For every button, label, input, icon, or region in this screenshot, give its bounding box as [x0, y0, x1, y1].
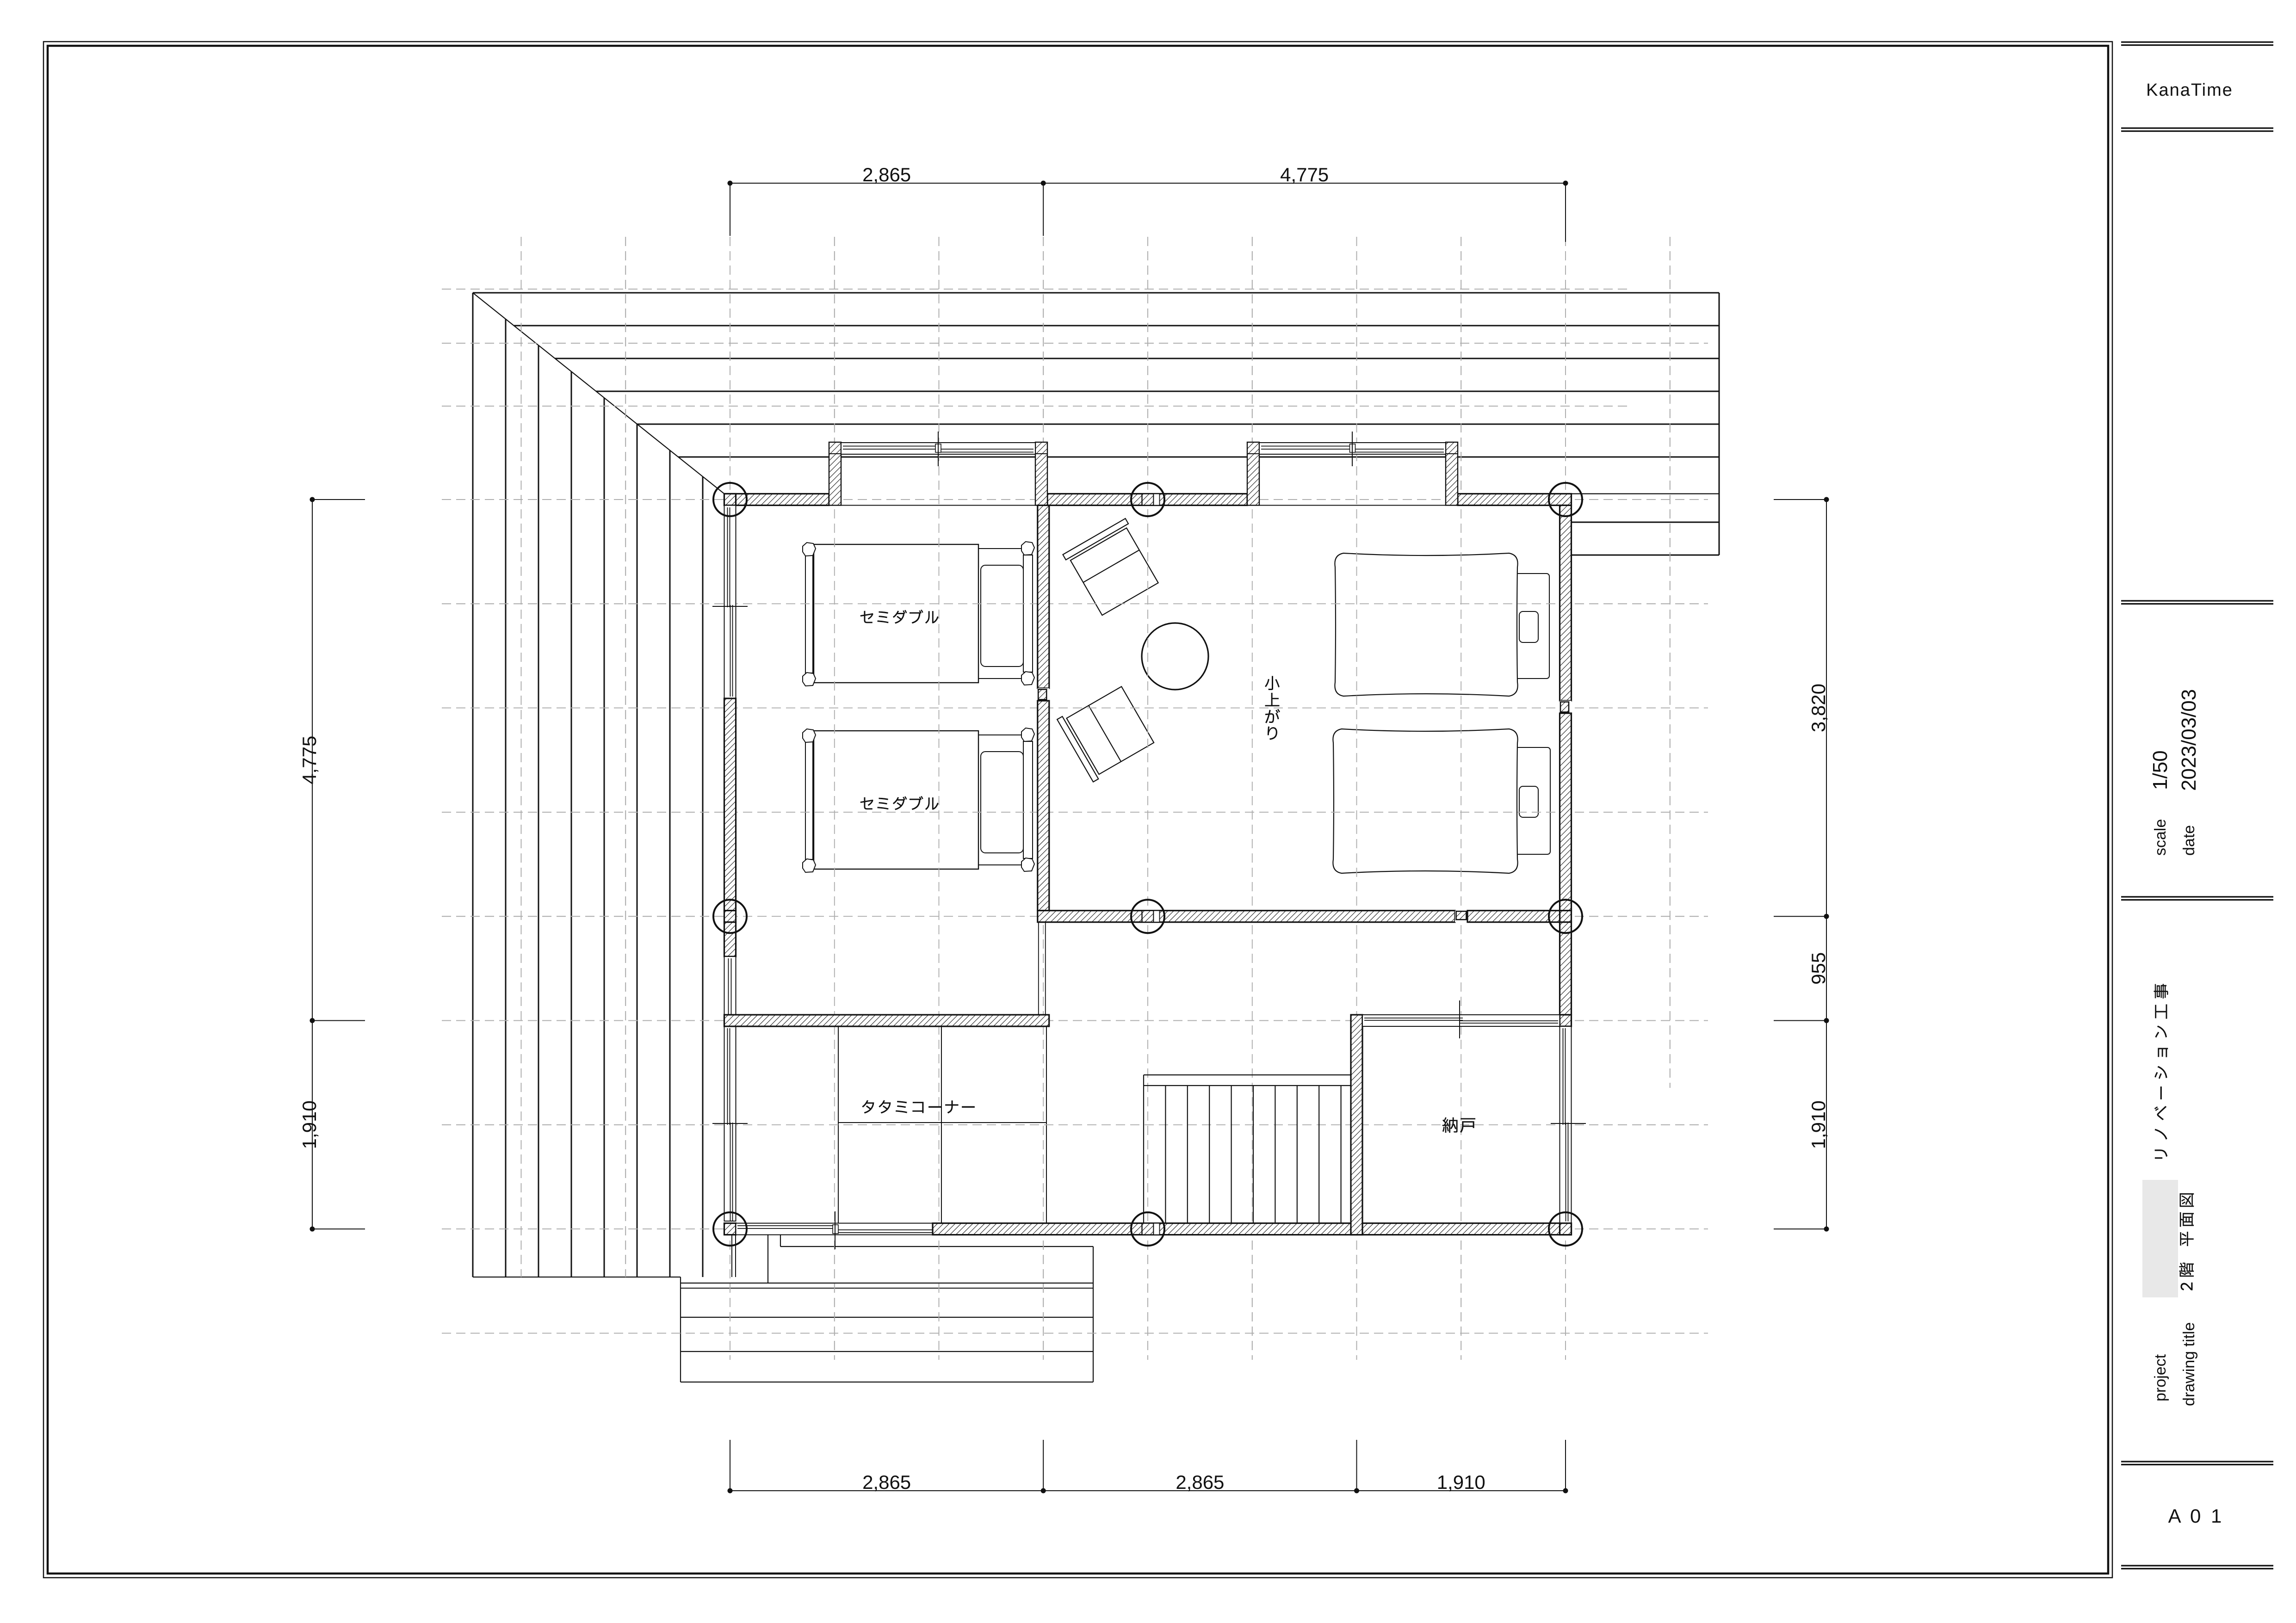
svg-text:1,910: 1,910: [1807, 1100, 1829, 1149]
svg-text:date: date: [2180, 825, 2198, 856]
svg-text:3,820: 3,820: [1807, 684, 1829, 732]
svg-text:drawing title: drawing title: [2180, 1322, 2198, 1406]
svg-text:A 0 1: A 0 1: [2168, 1505, 2224, 1527]
svg-text:1,910: 1,910: [1437, 1471, 1485, 1493]
svg-text:2,865: 2,865: [862, 1471, 911, 1493]
svg-text:4,775: 4,775: [1280, 164, 1329, 185]
svg-text:4,775: 4,775: [298, 736, 320, 784]
svg-text:955: 955: [1807, 952, 1829, 985]
svg-text:2,865: 2,865: [1176, 1471, 1224, 1493]
svg-text:KanaTime: KanaTime: [2146, 80, 2233, 100]
svg-text:1/50: 1/50: [2149, 750, 2172, 790]
svg-text:1,910: 1,910: [298, 1100, 320, 1149]
svg-text:project: project: [2152, 1354, 2169, 1401]
svg-text:2023/03/03: 2023/03/03: [2178, 689, 2200, 791]
svg-text:2,865: 2,865: [862, 164, 911, 185]
svg-text:scale: scale: [2152, 819, 2169, 856]
